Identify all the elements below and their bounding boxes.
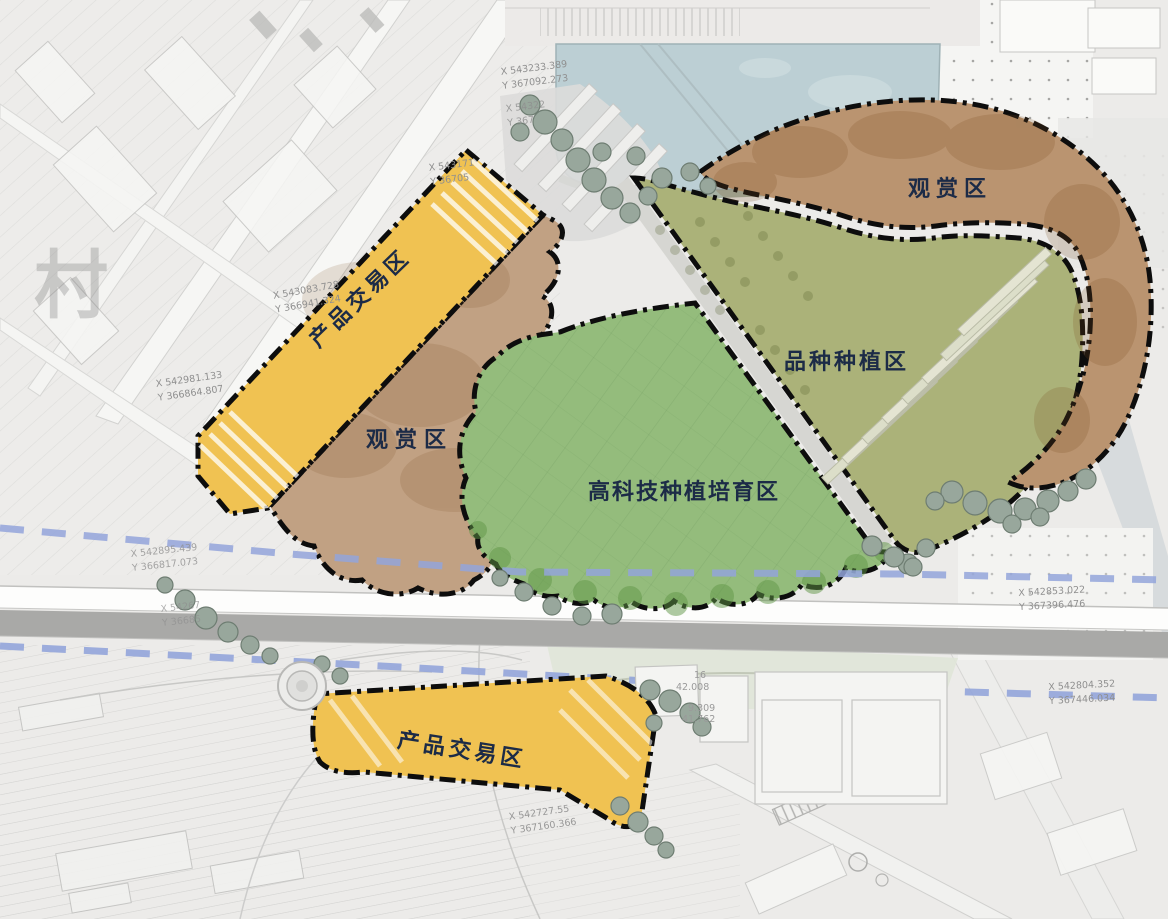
village-watermark: 村 (34, 226, 118, 333)
survey-coordinate: X 542853.022 Y 367396.476 (1018, 583, 1086, 614)
survey-number: 9.309 (688, 703, 715, 714)
survey-number: 42.008 (676, 682, 709, 693)
survey-number: 41.762 (682, 714, 715, 725)
survey-coordinate: X 543171 Y 36705 (428, 156, 477, 189)
survey-number: 16 (694, 670, 706, 681)
survey-coordinate: X 54267 Y 36685 (160, 599, 202, 631)
zone-label-viewing-west: 观赏区 (366, 422, 453, 454)
survey-coordinate: X 54322 Y 367 (505, 98, 548, 130)
site-plan-canvas (0, 0, 1168, 919)
roundabout (278, 662, 326, 710)
site-plan: 村 产品交易区 观赏区 高科技种植培育区 品种种植区 观赏区 产品交易区 X 5… (0, 0, 1168, 919)
zone-label-viewing-northeast: 观赏区 (908, 171, 992, 203)
survey-coordinate: X 542804.352 Y 367446.034 (1048, 677, 1116, 708)
zone-label-hightech-cultivation: 高科技种植培育区 (588, 474, 780, 506)
zone-label-variety-planting: 品种种植区 (784, 344, 909, 376)
